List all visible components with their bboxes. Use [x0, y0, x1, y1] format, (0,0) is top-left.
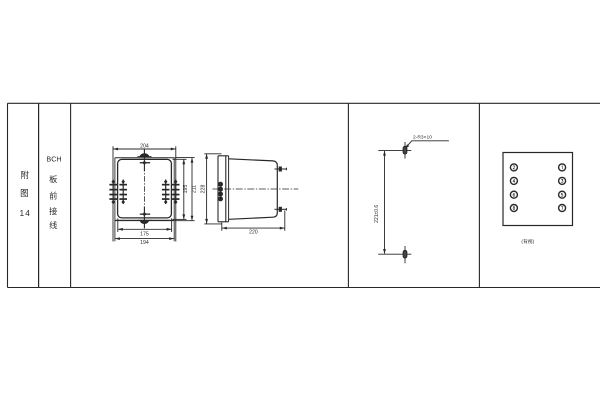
svg-text:175: 175 [140, 232, 149, 238]
svg-text:220: 220 [249, 230, 258, 236]
svg-text:221±0.6: 221±0.6 [374, 205, 380, 223]
svg-text:2-R3×10: 2-R3×10 [413, 134, 432, 140]
svg-text:线: 线 [49, 220, 57, 230]
svg-text:板: 板 [49, 174, 57, 184]
svg-text:接: 接 [49, 206, 57, 216]
svg-text:前: 前 [49, 191, 57, 201]
svg-text:图: 图 [20, 188, 29, 198]
svg-text:211: 211 [191, 185, 197, 193]
svg-text:204: 204 [140, 143, 149, 149]
svg-text:14: 14 [20, 208, 31, 218]
svg-text:194: 194 [140, 240, 149, 246]
svg-text:附: 附 [20, 169, 29, 180]
svg-text:BCH: BCH [46, 154, 61, 163]
svg-text:228: 228 [200, 185, 206, 194]
svg-text:(背视): (背视) [521, 238, 534, 245]
svg-text:195: 195 [183, 185, 189, 194]
